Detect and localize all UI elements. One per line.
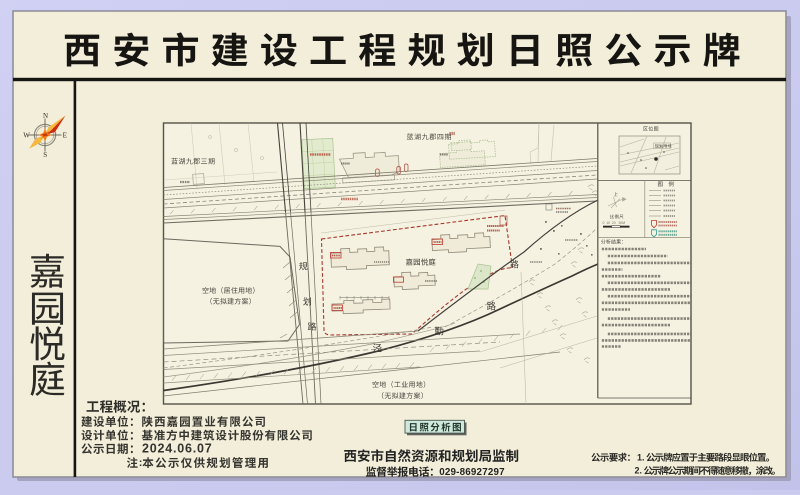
svg-text::: :	[139, 457, 143, 469]
svg-text:0 10 20 30M: 0 10 20 30M	[603, 221, 626, 225]
svg-text:E: E	[63, 132, 67, 140]
svg-text:W: W	[23, 132, 30, 140]
svg-text:2024.06.07: 2024.06.07	[142, 442, 213, 456]
svg-text:N: N	[43, 112, 48, 120]
svg-text:S: S	[43, 151, 47, 159]
svg-text:2.: 2.	[635, 466, 643, 476]
svg-text:1.: 1.	[637, 452, 645, 462]
svg-text:029-86927297: 029-86927297	[439, 467, 505, 478]
